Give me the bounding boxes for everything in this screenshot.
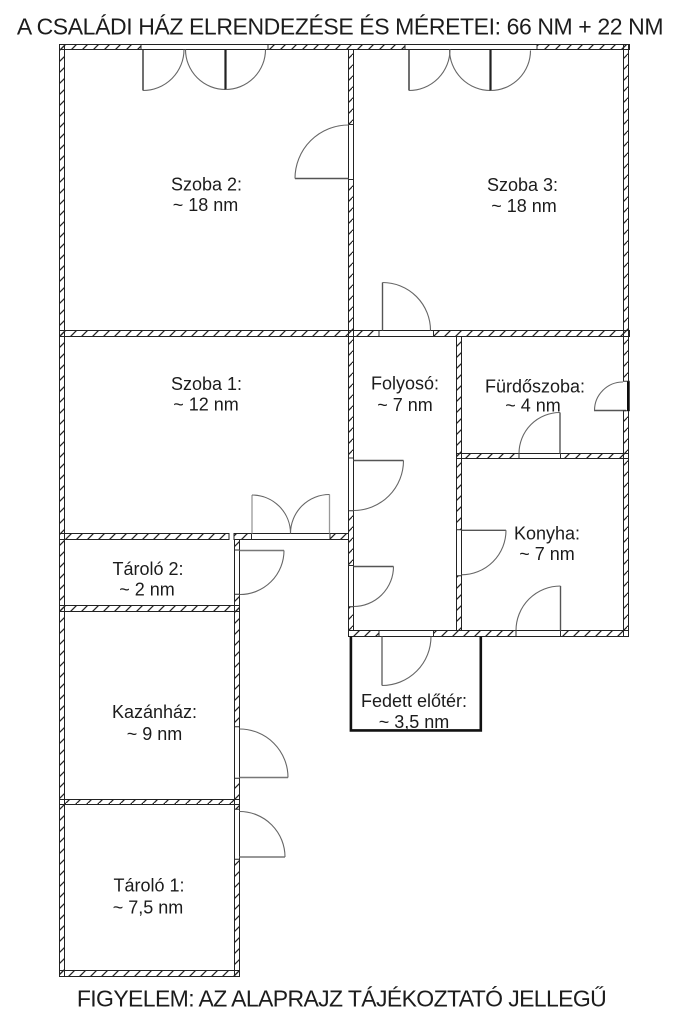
svg-text:Kazánház:: Kazánház:: [112, 702, 197, 722]
svg-text:~ 9 nm: ~ 9 nm: [127, 724, 183, 744]
svg-text:~ 7 nm: ~ 7 nm: [519, 544, 575, 564]
svg-text:Szoba 1:: Szoba 1:: [171, 374, 242, 394]
svg-text:Fürdőszoba:: Fürdőszoba:: [485, 377, 585, 397]
svg-text:Folyosó:: Folyosó:: [371, 374, 439, 394]
svg-text:FIGYELEM: AZ ALAPRAJZ TÁJÉKOZT: FIGYELEM: AZ ALAPRAJZ TÁJÉKOZTATÓ JELLEG…: [77, 986, 606, 1012]
svg-text:Tároló 1:: Tároló 1:: [113, 876, 184, 896]
svg-text:Tároló 2:: Tároló 2:: [112, 559, 183, 579]
svg-text:~ 18 nm: ~ 18 nm: [491, 196, 557, 216]
svg-text:Fedett előtér:: Fedett előtér:: [361, 691, 467, 711]
svg-text:~ 12 nm: ~ 12 nm: [173, 395, 239, 415]
svg-text:~ 18 nm: ~ 18 nm: [173, 195, 239, 215]
svg-text:~ 7,5 nm: ~ 7,5 nm: [113, 898, 184, 918]
svg-text:~ 7 nm: ~ 7 nm: [377, 395, 433, 415]
svg-text:~ 2 nm: ~ 2 nm: [119, 580, 175, 600]
svg-text:Szoba 2:: Szoba 2:: [171, 175, 242, 195]
svg-text:~ 3,5 nm: ~ 3,5 nm: [379, 712, 450, 732]
svg-text:Szoba 3:: Szoba 3:: [487, 175, 558, 195]
svg-text:Konyha:: Konyha:: [514, 524, 580, 544]
svg-text:A CSALÁDI HÁZ ELRENDEZÉSE ÉS M: A CSALÁDI HÁZ ELRENDEZÉSE ÉS MÉRETEI: 66…: [17, 14, 663, 40]
svg-text:~ 4 nm: ~ 4 nm: [505, 396, 561, 416]
